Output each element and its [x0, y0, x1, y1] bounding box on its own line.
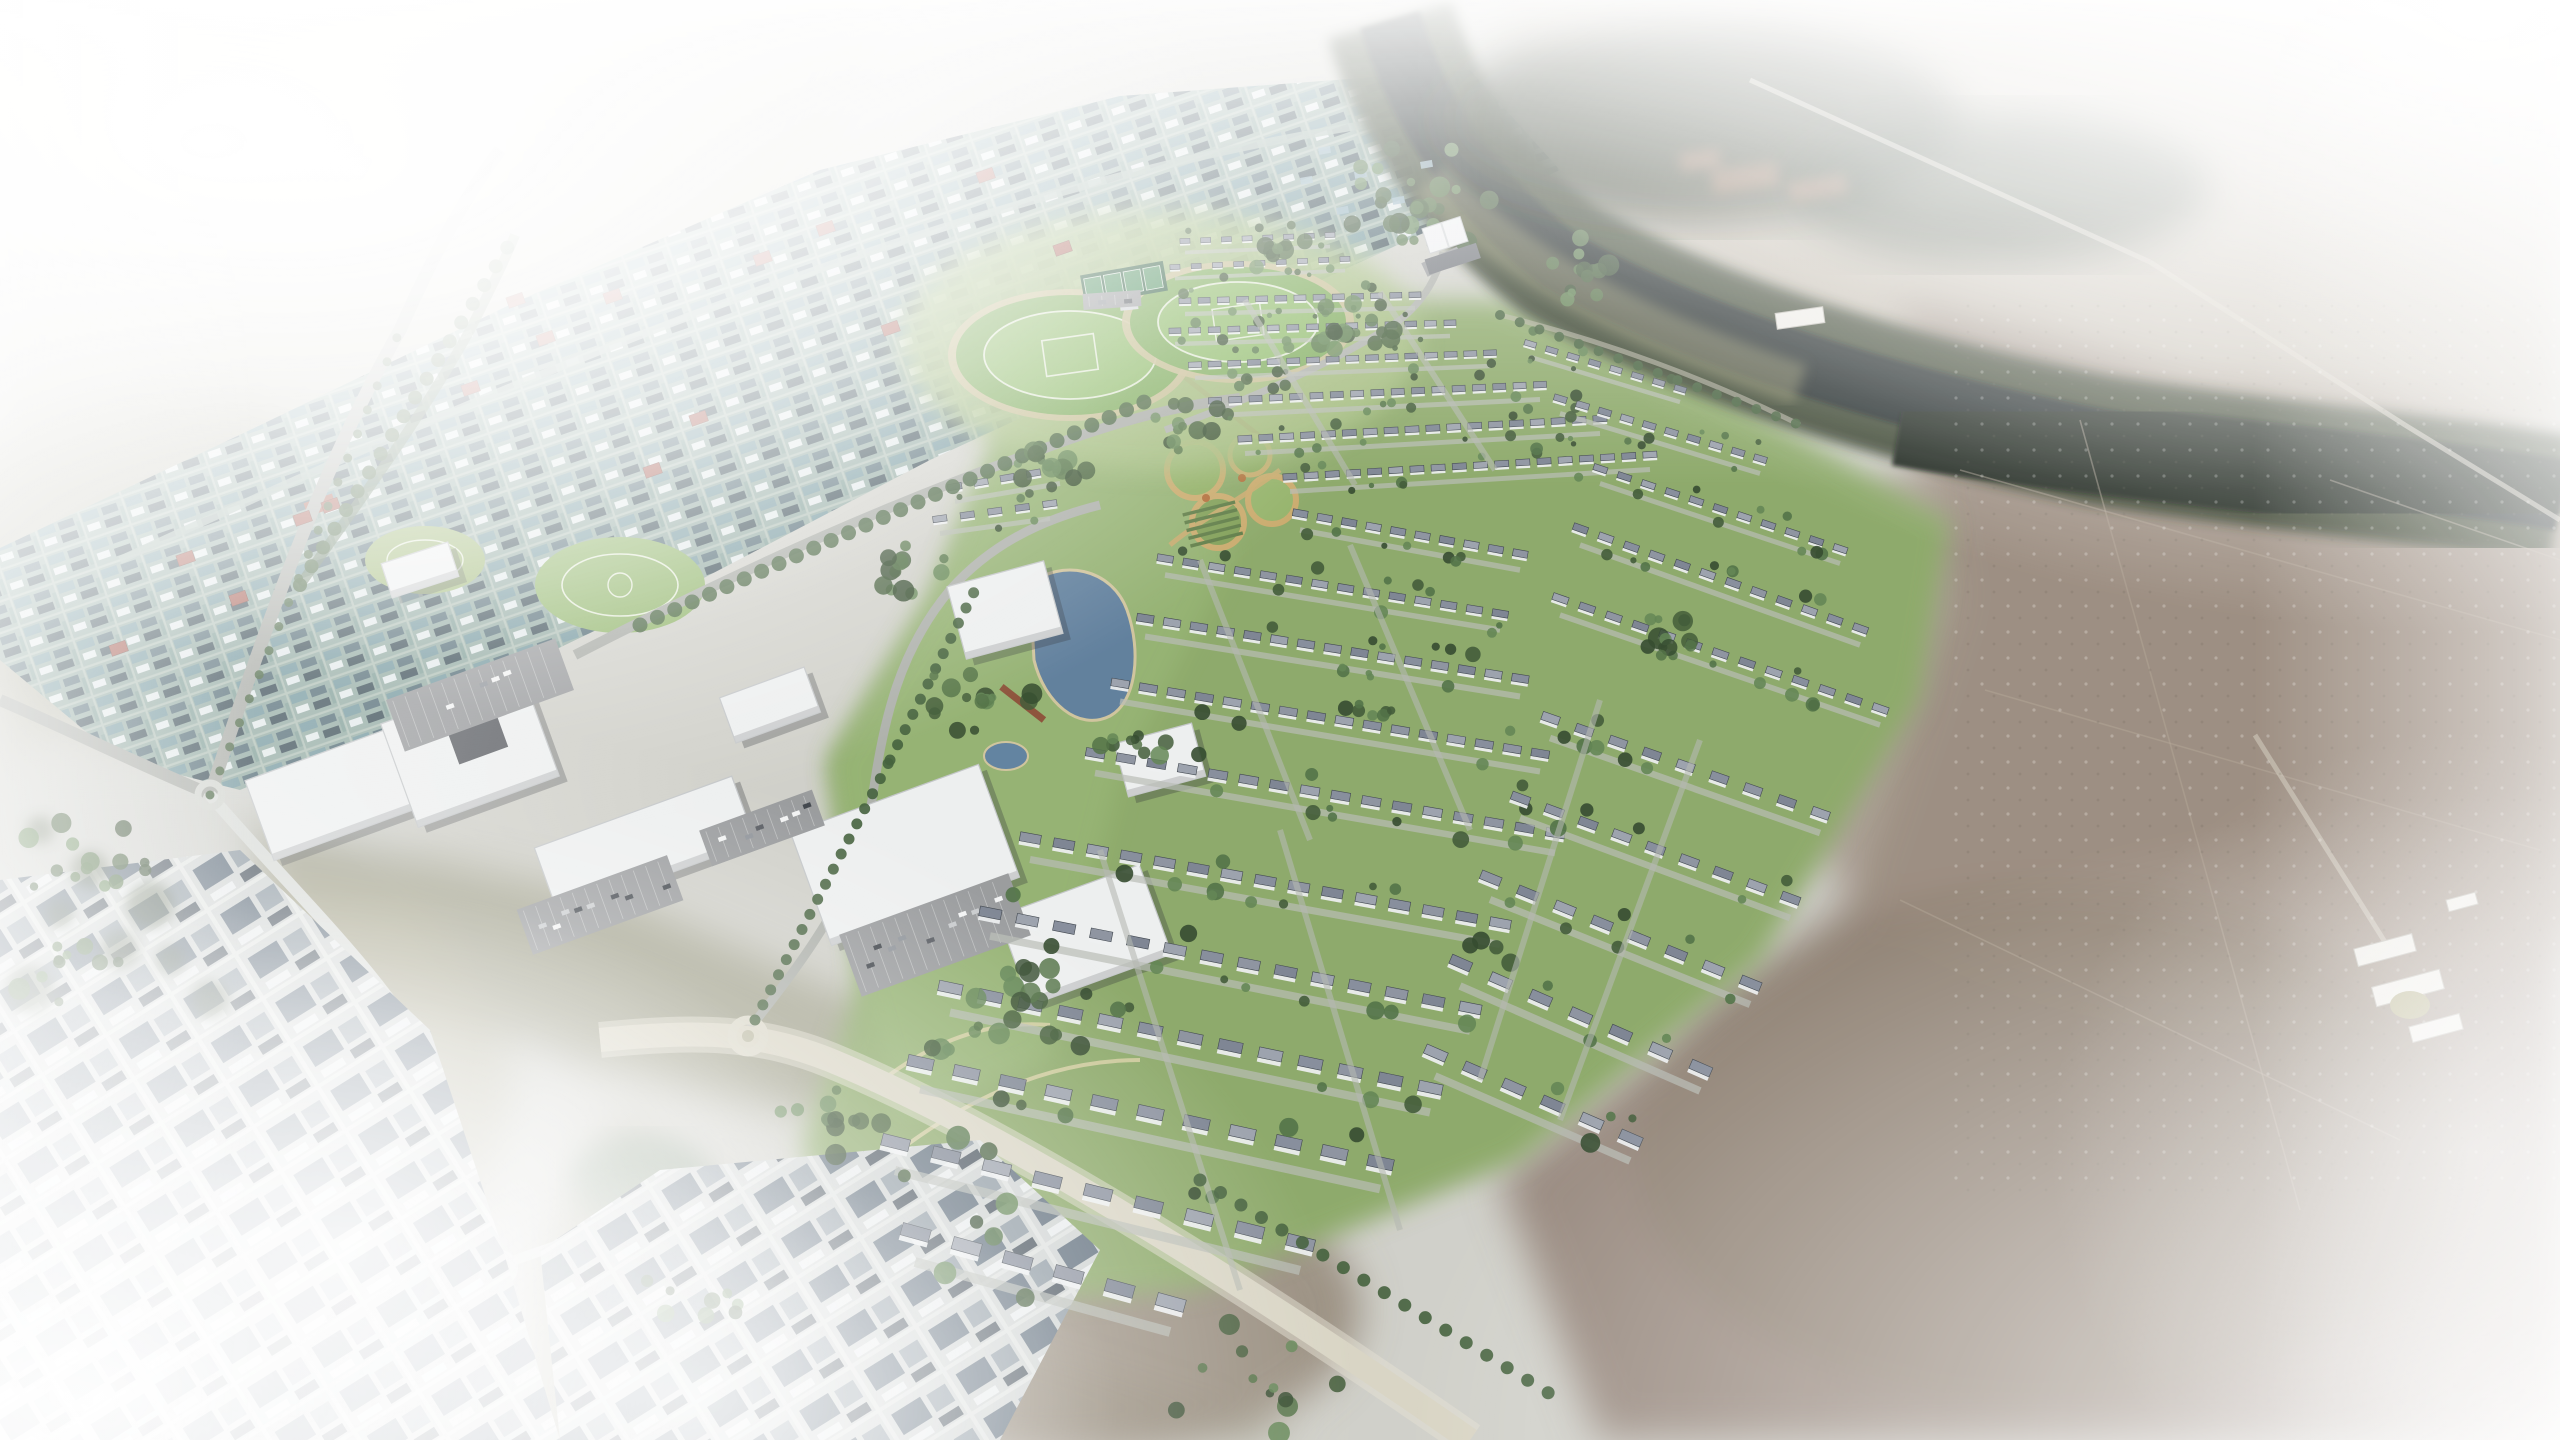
masterplan-aerial-render: Aerial photomontage render of a riversid… [0, 0, 2560, 1440]
aerial-render-stage: Aerial photomontage render of a riversid… [0, 0, 2560, 1440]
fog-vignette [0, 0, 2560, 1440]
